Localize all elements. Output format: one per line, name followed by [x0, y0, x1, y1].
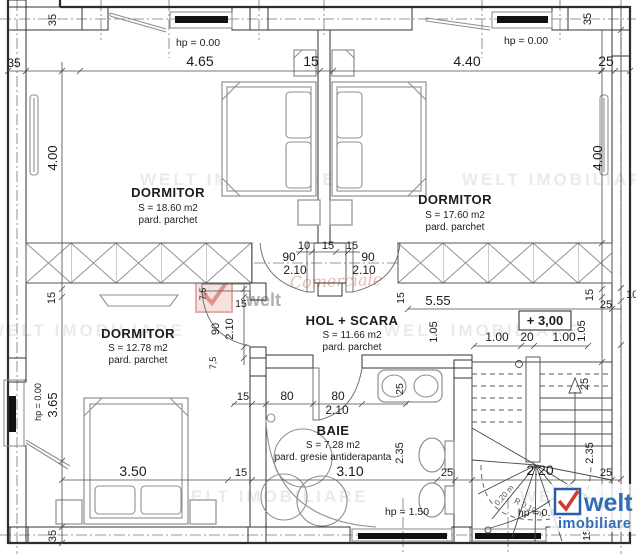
dim-label: 15 [235, 467, 247, 479]
logo-sub-text: imobiliare [558, 516, 632, 532]
window-note: hp = 0.00 [176, 37, 220, 49]
window-glazing [497, 16, 548, 23]
level-marker: + 3,00 [519, 311, 571, 330]
dim-label: 10 [298, 240, 310, 252]
room-name: DORMITOR [101, 326, 175, 341]
room-floor: pard. parchet [109, 355, 168, 366]
room-floor: pard. parchet [139, 215, 198, 226]
dim-label: 1.00 [485, 330, 509, 344]
dim-label: 90 [210, 323, 222, 335]
dim-label: 25 [394, 383, 406, 395]
dim-label: 25 [598, 53, 614, 69]
bed-1 [222, 50, 320, 225]
dim-label: 15 [303, 53, 319, 69]
dim-label: 2.20 [526, 462, 553, 478]
dim-label: 90 [282, 250, 296, 264]
dim-label: 15 [395, 292, 407, 304]
brand-logo: welt imobiliare [550, 484, 636, 532]
open-casement-leaf [426, 18, 490, 30]
room-name: DORMITOR [418, 192, 492, 207]
dim-label: 25 [600, 299, 612, 311]
room-name: HOL + SCARA [306, 313, 399, 328]
room-area: S = 17.60 m2 [425, 210, 485, 221]
open-casement-leaf [26, 440, 70, 469]
side-table [330, 200, 352, 225]
dim-label: 15 [237, 391, 249, 403]
dim-label: 90 [361, 250, 375, 264]
room-floor: pard. parchet [323, 342, 382, 353]
stair-center-wall [526, 357, 540, 462]
dim-label: 15 [46, 292, 58, 304]
logo-brand-text: welt [583, 489, 633, 517]
dim-label: 5.55 [425, 293, 450, 308]
dim-label: 80 [280, 389, 294, 403]
window-glazing [475, 533, 541, 539]
dim-label: 1.05 [576, 320, 588, 341]
watermark: WELT IMOBILIARE [462, 170, 636, 189]
room-name: BAIE [317, 423, 350, 438]
dim-label: 2.35 [394, 442, 406, 463]
dim-label: 4.40 [453, 53, 480, 69]
room-name: DORMITOR [131, 185, 205, 200]
floor-plan-drawing: WELT IMOBILIARE WELT IMOBILIARE WELT IMO… [0, 0, 636, 554]
nightstand [190, 500, 216, 524]
dim-label: 25 [579, 378, 591, 390]
window-note: hp = 0.00 [33, 383, 43, 421]
dim-label: 35 [47, 530, 59, 542]
dim-label: 4.00 [590, 145, 605, 170]
level-value: + 3,00 [527, 313, 564, 328]
dim-label: 2.10 [224, 318, 236, 339]
toilet-tank [445, 441, 454, 469]
dim-label: 15 [346, 240, 358, 252]
room-floor: pard. gresie antiderapanta [275, 452, 392, 463]
faucet [267, 414, 275, 422]
dim-label: 35 [7, 56, 21, 70]
dim-label: 80 [331, 389, 345, 403]
dim-label: 2.10 [352, 263, 376, 277]
nightstand [332, 50, 354, 76]
window-glazing [358, 533, 447, 539]
dim-label: 4.00 [45, 145, 60, 170]
dim-label: 10 [626, 289, 636, 301]
room-area: S = 18.60 m2 [138, 203, 198, 214]
dim-label: 3.65 [45, 392, 60, 417]
dim-label: 35 [582, 13, 594, 25]
window-note: hp = 1.50 [385, 506, 429, 518]
dim-label: 35 [47, 14, 59, 26]
open-casement-leaf [110, 13, 166, 32]
door-leaf [313, 368, 319, 420]
toilet-tank [445, 486, 454, 514]
dim-label: 25 [441, 467, 453, 479]
dim-label: 2.10 [325, 403, 349, 417]
window-glazing [175, 16, 228, 23]
nightstand [56, 500, 82, 524]
shelf [100, 295, 178, 306]
dim-label: 3.50 [119, 463, 146, 479]
window-glazing [9, 396, 16, 432]
room-floor: pard. parchet [426, 222, 485, 233]
dim-label: 2.35 [584, 442, 596, 463]
dim-label: 4.65 [186, 53, 213, 69]
dim-label: 1.05 [428, 321, 440, 342]
dim-label: 7,5 [208, 357, 218, 370]
room-area: S = 12.78 m2 [108, 343, 168, 354]
dim-label: 3.10 [336, 463, 363, 479]
dim-label: 20 [520, 330, 534, 344]
double-sink-counter [378, 370, 442, 402]
radiators [30, 95, 608, 175]
dim-label: 15 [235, 298, 247, 310]
dim-label: 2.10 [283, 263, 307, 277]
dim-label: 7,5 [198, 288, 208, 301]
dim-label: 15 [322, 240, 334, 252]
room-area: S = 7.28 m2 [306, 440, 361, 451]
dim-label: 1.00 [552, 330, 576, 344]
room-area: S = 11.66 m2 [322, 330, 381, 341]
floor-plan: WELT IMOBILIARE WELT IMOBILIARE WELT IMO… [0, 0, 636, 554]
window-note: hp = 0.00 [504, 35, 548, 47]
dim-label: 15 [584, 289, 596, 301]
bed-2 [330, 50, 426, 225]
side-table [298, 200, 320, 225]
dim-label: 25 [600, 467, 612, 479]
